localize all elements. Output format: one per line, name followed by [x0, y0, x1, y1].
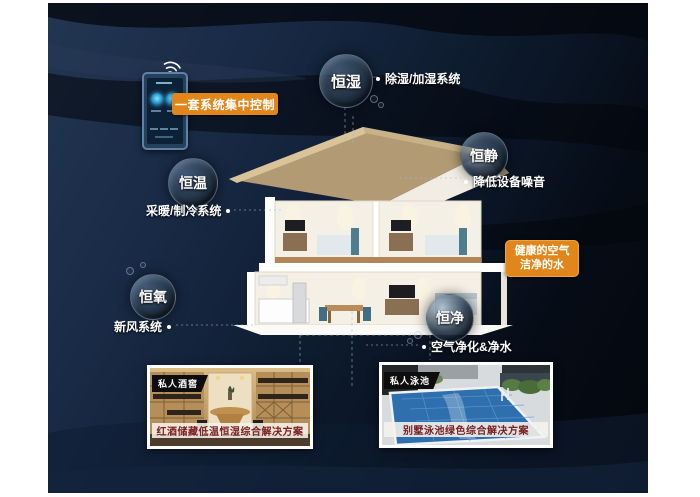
feature-humidity-system: 除湿/加湿系统 — [376, 70, 460, 87]
decorative-bubble — [126, 267, 134, 275]
feature-label: 空气净化&净水 — [431, 338, 512, 355]
decorative-bubble — [414, 331, 422, 339]
central-control-label: 一套系统集中控制 — [172, 93, 278, 115]
bullet-dot — [167, 325, 171, 329]
feature-label: 降低设备噪音 — [473, 173, 545, 190]
healthy-air-water-box: 健康的空气 洁净的水 — [505, 240, 579, 277]
wine-cellar-photo: 私人酒窖 红酒储藏低温恒湿综合解决方案 — [150, 368, 310, 446]
feature-label: 除湿/加湿系统 — [385, 70, 460, 87]
bubble-constant-purity: 恒净 — [426, 294, 474, 342]
poster-background: 一套系统集中控制 恒湿 恒静 恒温 恒氧 恒净 除湿/加湿系统 降低设备噪音 采… — [48, 3, 648, 493]
wine-cellar-caption: 红酒储藏低温恒湿综合解决方案 — [152, 423, 308, 438]
feature-label: 新风系统 — [114, 318, 162, 335]
feature-fresh-air: 新风系统 — [114, 318, 171, 335]
bullet-dot — [226, 209, 230, 213]
bullet-dot — [422, 345, 426, 349]
wine-cellar-badge: 私人酒窖 — [152, 375, 208, 392]
decorative-bubble — [378, 102, 384, 108]
highlight-line2: 洁净的水 — [506, 258, 578, 272]
bubble-constant-oxygen: 恒氧 — [130, 274, 176, 320]
highlight-line1: 健康的空气 — [506, 244, 578, 258]
wine-cellar-card: 私人酒窖 红酒储藏低温恒湿综合解决方案 — [147, 365, 313, 449]
decorative-bubble — [140, 262, 146, 268]
pool-caption: 别墅泳池绿色综合解决方案 — [384, 422, 548, 437]
pool-photo: 私人泳池 别墅泳池绿色综合解决方案 — [382, 365, 550, 445]
bubble-constant-temperature: 恒温 — [168, 158, 218, 208]
decorative-bubble — [407, 338, 413, 344]
bubble-constant-humidity: 恒湿 — [319, 54, 373, 108]
bullet-dot — [464, 180, 468, 184]
feature-label: 采暖/制冷系统 — [146, 202, 221, 219]
pool-badge: 私人泳池 — [384, 372, 440, 389]
feature-hvac: 采暖/制冷系统 — [146, 202, 230, 219]
decorative-bubble — [370, 95, 378, 103]
feature-noise-reduction: 降低设备噪音 — [464, 173, 545, 190]
feature-purification: 空气净化&净水 — [422, 338, 512, 355]
smart-home-poster: 一套系统集中控制 恒湿 恒静 恒温 恒氧 恒净 除湿/加湿系统 降低设备噪音 采… — [0, 0, 700, 497]
bullet-dot — [376, 77, 380, 81]
pool-card: 私人泳池 别墅泳池绿色综合解决方案 — [379, 362, 553, 448]
